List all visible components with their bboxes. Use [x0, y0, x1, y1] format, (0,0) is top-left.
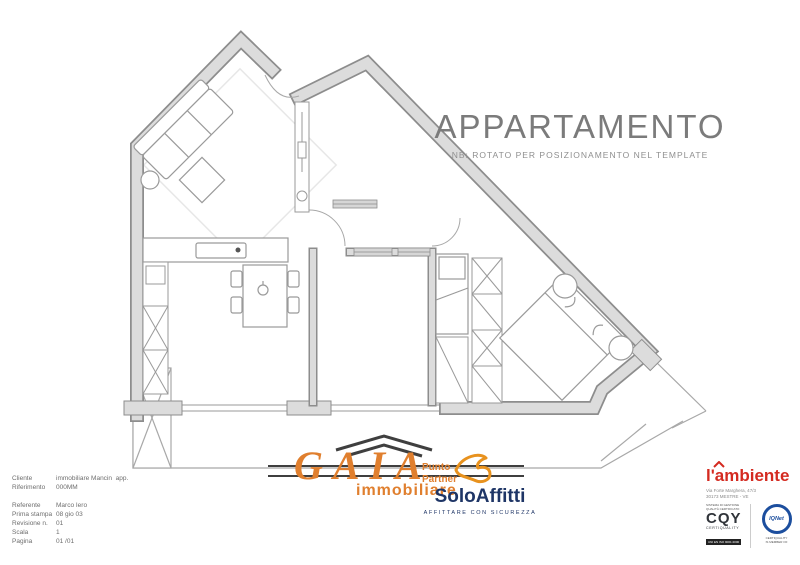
ambiente-wordmark: l'ambiente [706, 466, 796, 486]
info-row-cliente: Cliente immobiliare Mancin app. [12, 474, 182, 483]
single-bed [436, 254, 468, 334]
dove-icon [450, 450, 496, 488]
house-icon [713, 461, 725, 468]
info-row-riferimento: Riferimento 000MM [12, 483, 182, 492]
certifications: SISTEMA DI GESTIONE QUALITÀ CERTIFICATO … [706, 504, 796, 548]
plan-sheet: APPARTAMENTO NB: ROTATO PER POSIZIONAMEN… [0, 0, 800, 565]
info-row-pagina: Pagina 01 /01 [12, 537, 182, 546]
soloaffitti-logo: SoloAffitti AFFITTARE CON SICUREZZA [420, 486, 540, 516]
bed-cabinet [436, 337, 468, 403]
dining-table [231, 265, 299, 327]
ambiente-block: l'ambiente Via Forte Marghera, 47/3 3017… [706, 466, 796, 548]
kitchen-cabinets [143, 262, 168, 394]
interior-walls [313, 252, 432, 402]
nightstand [553, 274, 577, 298]
certiquality-badge: SISTEMA DI GESTIONE QUALITÀ CERTIFICATO … [706, 504, 751, 548]
info-row-revisione: Revisione n. 01 [12, 519, 182, 528]
page-subtitle: NB: ROTATO PER POSIZIONAMENTO NEL TEMPLA… [420, 150, 740, 160]
iqnet-circle: IQNet [762, 504, 792, 534]
info-row-prima-stampa: Prima stampa 08 gio 03 [12, 510, 182, 519]
soloaffitti-tagline: AFFITTARE CON SICUREZZA [420, 510, 540, 516]
side-table [141, 171, 159, 189]
ambiente-address: Via Forte Marghera, 47/3 30173 MESTRE - … [706, 488, 796, 499]
iqnet-badge: IQNet CERTIQUALITY IS MEMBER OF [757, 504, 796, 545]
page-title: APPARTAMENTO [420, 108, 740, 146]
bathroom-fixtures [295, 102, 309, 212]
soloaffitti-wordmark: SoloAffitti [420, 486, 540, 508]
title-block: APPARTAMENTO NB: ROTATO PER POSIZIONAMEN… [420, 108, 740, 160]
kitchen-counter [143, 238, 288, 262]
info-row-scala: Scala 1 [12, 528, 182, 537]
info-row-referente: Referente Marco Iero [12, 501, 182, 510]
nightstand [609, 336, 633, 360]
project-info: Cliente immobiliare Mancin app. Riferime… [12, 474, 182, 546]
coffee-table [179, 157, 224, 202]
wardrobe [472, 258, 502, 403]
